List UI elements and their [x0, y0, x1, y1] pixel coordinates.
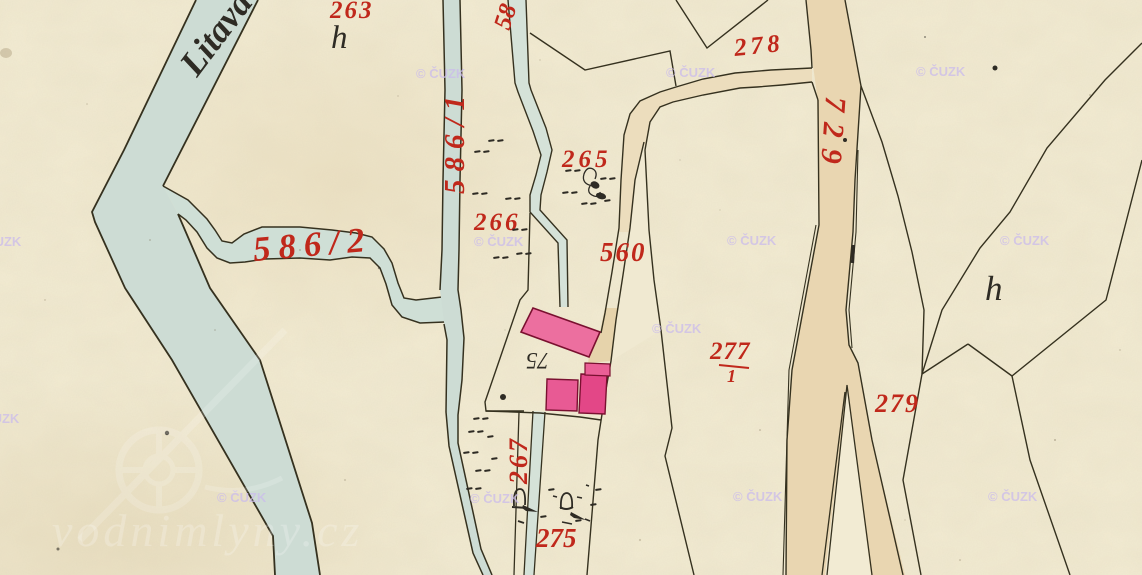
svg-text:h: h: [331, 20, 348, 56]
svg-text:h: h: [985, 269, 1003, 308]
svg-text:729: 729: [814, 96, 852, 176]
svg-text:275: 275: [535, 523, 577, 553]
svg-text:© ČUZK: © ČUZK: [0, 234, 22, 249]
svg-text:75: 75: [526, 348, 549, 373]
svg-text:1: 1: [727, 366, 736, 386]
svg-text:© ČUZK: © ČUZK: [0, 411, 20, 426]
svg-text:279: 279: [874, 389, 920, 418]
svg-text:© ČUZK: © ČUZK: [1000, 233, 1050, 248]
svg-text:© ČUZK: © ČUZK: [474, 234, 524, 249]
svg-text:277: 277: [709, 338, 751, 365]
svg-text:278: 278: [732, 30, 785, 62]
svg-text:586/1: 586/1: [439, 88, 471, 194]
svg-text:© ČUZK: © ČUZK: [988, 489, 1038, 504]
svg-text:265: 265: [561, 146, 612, 173]
svg-text:vodnimlyny.cz: vodnimlyny.cz: [52, 505, 363, 556]
svg-text:© ČUZK: © ČUZK: [416, 66, 466, 81]
svg-text:© ČUZK: © ČUZK: [916, 64, 966, 79]
svg-text:© ČUZK: © ČUZK: [727, 233, 777, 248]
svg-text:© ČUZK: © ČUZK: [733, 489, 783, 504]
svg-text:© ČUZK: © ČUZK: [470, 491, 520, 506]
svg-text:266: 266: [473, 209, 521, 236]
svg-text:267: 267: [504, 436, 533, 485]
svg-text:© ČUZK: © ČUZK: [652, 321, 702, 336]
svg-text:560: 560: [600, 237, 647, 267]
svg-text:© ČUZK: © ČUZK: [666, 65, 716, 80]
